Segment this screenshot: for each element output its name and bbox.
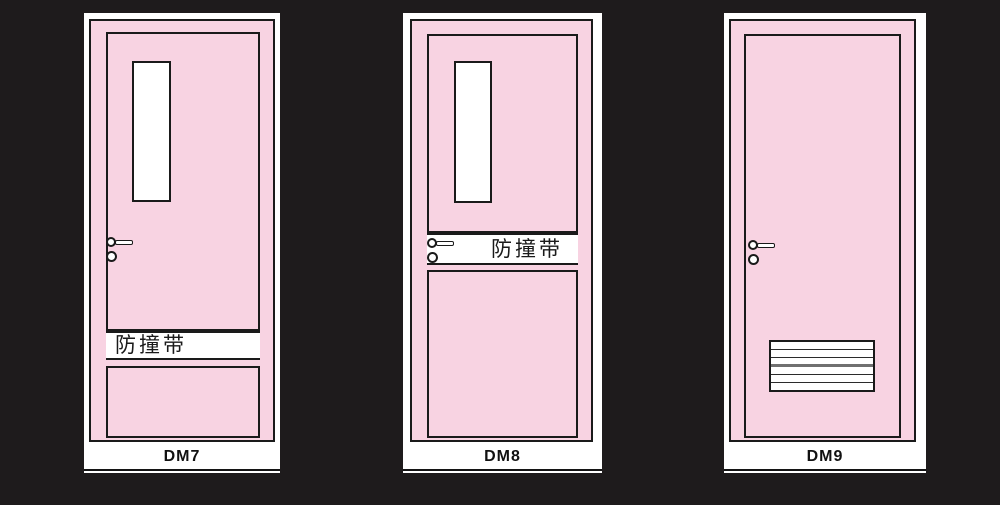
door-upper-panel [427,34,578,233]
louver-slat [771,382,873,390]
protection-band-label: 防撞带 [106,335,187,356]
louver-vent [769,340,875,392]
door-leaf: 防撞带 [106,32,260,438]
louver-slat [771,364,873,374]
catalog-stage: 防撞带 DM7 防撞带 [0,0,1000,505]
louver-slat [771,342,873,349]
protection-band: 防撞带 [427,233,578,265]
protection-band-label: 防撞带 [491,239,563,260]
door-card-dm7: 防撞带 DM7 [84,13,280,473]
door-handle [106,237,142,265]
door-card-dm8: 防撞带 DM8 [403,13,602,473]
door-lower-panel [106,366,260,438]
handle-lever-icon [757,243,775,248]
handle-cylinder-icon [106,251,117,262]
door-upper-panel [106,32,260,331]
vision-panel-window [454,61,492,203]
door-model-label: DM7 [84,445,280,471]
door-model-text: DM7 [164,448,201,466]
vision-panel-window [132,61,171,202]
handle-cylinder-icon [427,252,438,263]
handle-cylinder-icon [748,254,759,265]
handle-lever-icon [436,241,454,246]
handle-lever-icon [115,240,133,245]
door-frame [729,19,916,442]
door-leaf [744,34,901,438]
protection-band: 防撞带 [106,331,260,360]
door-leaf: 防撞带 [427,34,578,438]
door-panel [744,34,901,438]
louver-slat [771,374,873,382]
louver-slat [771,349,873,357]
door-frame: 防撞带 [410,19,593,442]
door-handle [748,240,784,268]
door-lower-panel [427,270,578,438]
door-handle [427,238,463,266]
door-model-text: DM9 [807,448,844,466]
door-frame: 防撞带 [89,19,275,442]
door-model-label: DM9 [724,445,926,471]
door-card-dm9: DM9 [724,13,926,473]
door-model-text: DM8 [484,448,521,466]
louver-slat [771,357,873,365]
door-model-label: DM8 [403,445,602,471]
